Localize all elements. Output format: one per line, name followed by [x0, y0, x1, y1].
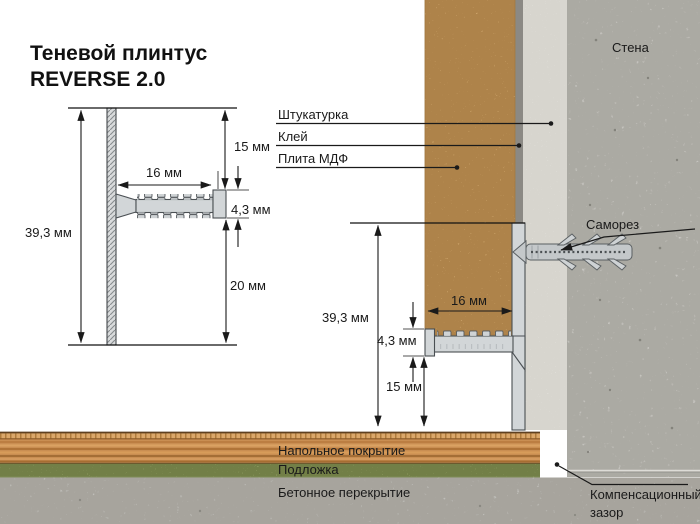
dim-bottom-offset-label: 20 мм [230, 278, 266, 293]
dim-total-height-label: 39,3 мм [25, 225, 72, 240]
dim-flange-thickness-label: 4,3 мм [231, 202, 271, 217]
install-dim-total-label: 39,3 мм [322, 310, 369, 325]
expansion-gap-label-line1: Компенсационный [590, 487, 700, 502]
glue-leader-dot [517, 143, 522, 148]
drawing-flange-web [136, 200, 213, 213]
underlay-texture [0, 464, 540, 477]
install-dim-flange-label: 16 мм [451, 293, 487, 308]
expansion-gap [540, 430, 567, 477]
glue-label: Клей [278, 129, 308, 144]
dim-flange-length-label: 16 мм [146, 165, 182, 180]
floor-covering-label: Напольное покрытие [278, 443, 405, 458]
expansion-gap-leader-dot [555, 462, 560, 467]
underlay-label: Подложка [278, 462, 339, 477]
concrete-slab-label: Бетонное перекрытие [278, 485, 410, 500]
drawing-teeth-bottom [137, 212, 213, 218]
wall-section [567, 0, 700, 477]
install-dim-gap-label: 15 мм [386, 379, 422, 394]
title-line1: Теневой плинтус [30, 42, 208, 65]
profile-flange-web [434, 336, 513, 352]
profile-end-block [425, 329, 435, 356]
plaster-layer [523, 0, 567, 430]
mdf-leader-dot [455, 165, 460, 170]
mdf-label: Плита МДФ [278, 151, 348, 166]
wall-label: Стена [612, 40, 650, 55]
profile-flange-teeth [437, 331, 511, 337]
screw-label: Саморез [586, 217, 639, 232]
drawing-teeth-top [137, 194, 213, 200]
technical-diagram: 39,3 мм 15 мм 16 мм 4,3 мм 20 мм 39,3 мм… [0, 0, 700, 524]
dim-top-offset-label: 15 мм [234, 139, 270, 154]
plaster-leader-dot [549, 121, 554, 126]
drawing-end-block [213, 190, 226, 218]
floor-grain-stripes [0, 442, 540, 461]
plaster-label: Штукатурка [278, 107, 349, 122]
title-line2: REVERSE 2.0 [30, 68, 165, 91]
diagram-canvas: 39,3 мм 15 мм 16 мм 4,3 мм 20 мм 39,3 мм… [0, 0, 700, 524]
expansion-gap-label-line2: зазор [590, 505, 623, 520]
wall-texture [567, 0, 700, 477]
plaster-shade [560, 0, 567, 430]
drawing-wall-bar [107, 108, 116, 345]
install-dim-thickness-label: 4,3 мм [377, 333, 417, 348]
